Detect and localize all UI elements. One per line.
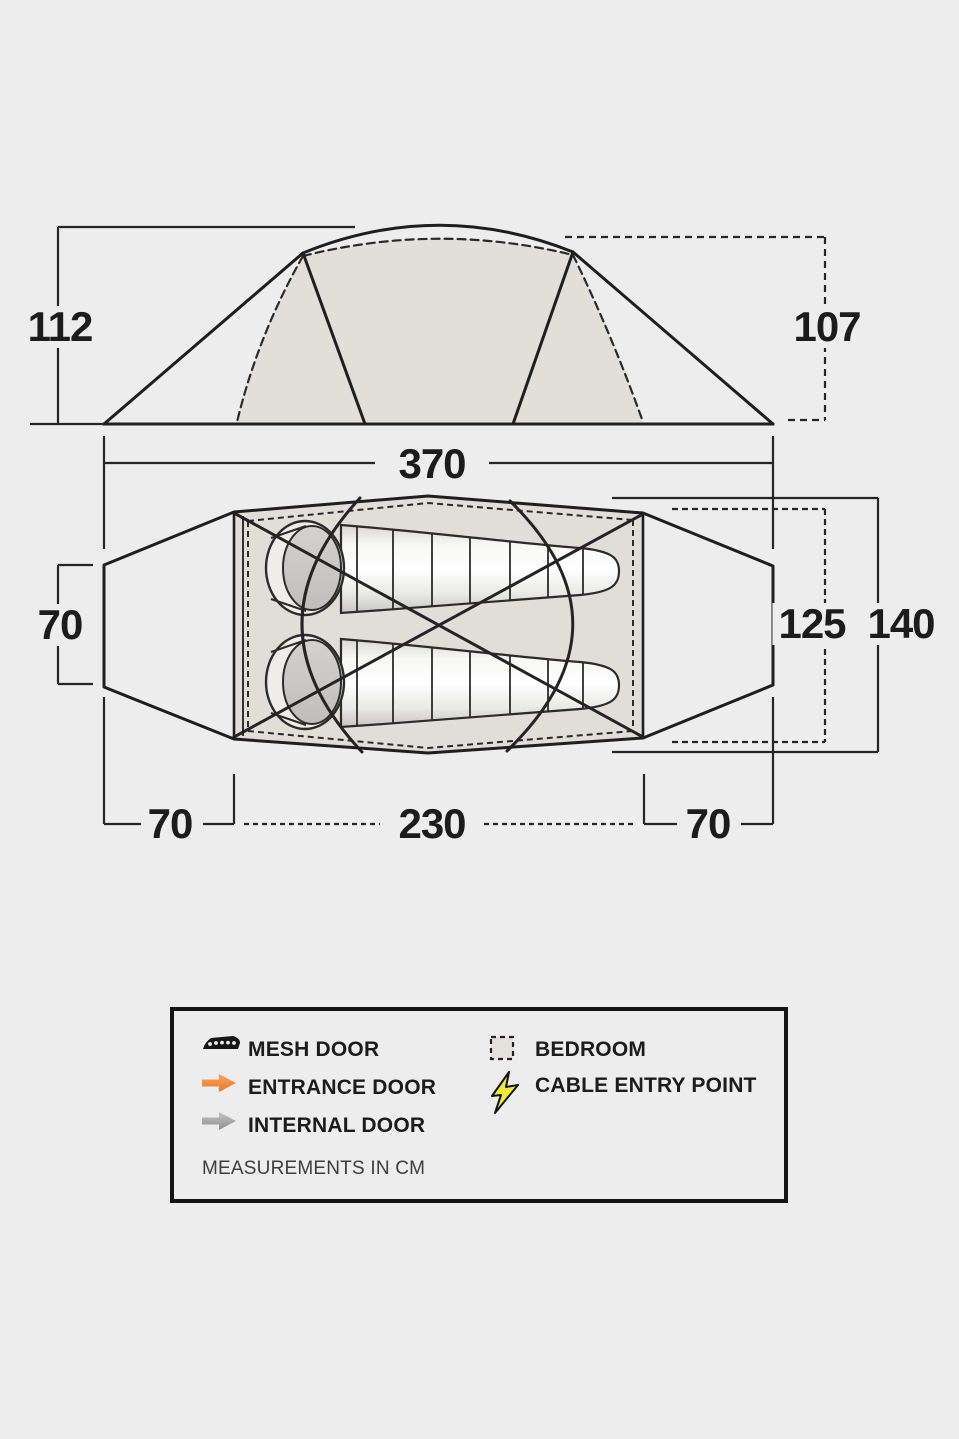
- dim-bedroom-length: 230: [392, 803, 471, 845]
- dim-elevation-left-height: 112: [22, 306, 99, 348]
- diagram-linework: [0, 0, 959, 1439]
- legend-label: CABLE ENTRY POINT: [535, 1074, 757, 1098]
- side-elevation-view: [104, 225, 773, 424]
- dim-outer-width: 140: [861, 603, 940, 645]
- dim-door-width: 70: [32, 604, 89, 646]
- dim-total-length: 370: [392, 443, 471, 485]
- legend-item-internal-door: INTERNAL DOOR: [202, 1111, 425, 1141]
- dim-front-vestibule: 70: [142, 803, 199, 845]
- dim-rear-vestibule: 70: [680, 803, 737, 845]
- dim-elevation-right-height: 107: [787, 306, 866, 348]
- legend-label: MESH DOOR: [248, 1038, 379, 1062]
- legend-label: ENTRANCE DOOR: [248, 1076, 436, 1100]
- legend-label: INTERNAL DOOR: [248, 1114, 425, 1138]
- legend-item-cable-entry: CABLE ENTRY POINT: [489, 1071, 757, 1101]
- elevation-inner-shade: [237, 239, 643, 422]
- legend-item-mesh-door: MESH DOOR: [202, 1035, 379, 1065]
- dim-inner-width: 125: [772, 603, 851, 645]
- legend-item-entrance-door: ENTRANCE DOOR: [202, 1073, 436, 1103]
- tent-dimensions-diagram: 112 107 370 70 125 140 70 230 70 MESH DO…: [0, 0, 959, 1439]
- floor-plan-view: [104, 496, 773, 753]
- legend-box: MESH DOOR ENTRANCE DOOR: [170, 1007, 788, 1203]
- legend-label: BEDROOM: [535, 1038, 646, 1062]
- legend-measurements-note: MEASUREMENTS IN CM: [202, 1158, 425, 1180]
- legend-item-bedroom: BEDROOM: [489, 1035, 646, 1065]
